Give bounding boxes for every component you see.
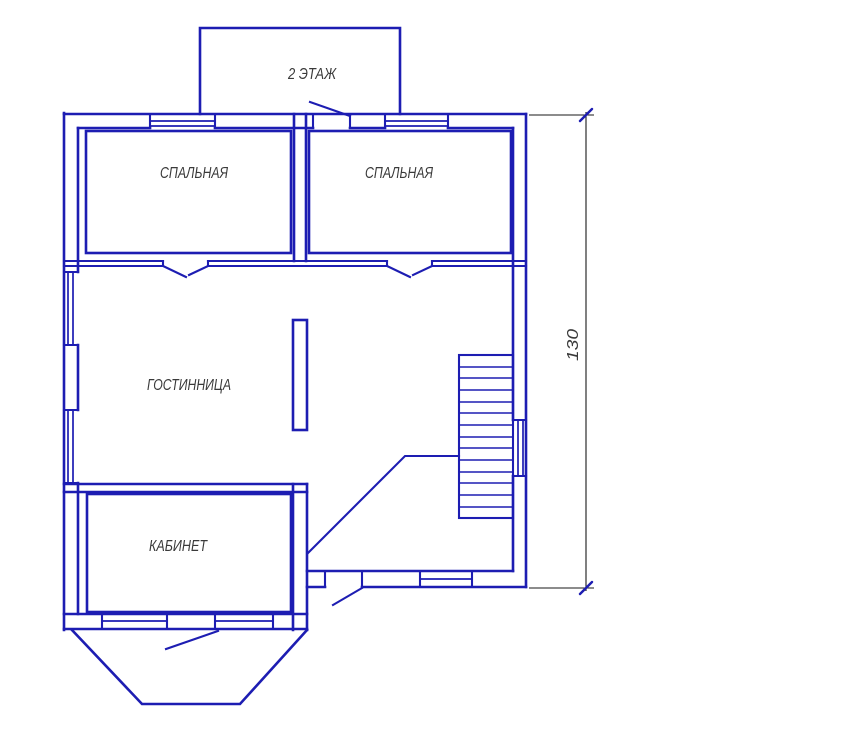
bedroom-right-box <box>309 131 511 253</box>
label-living-room: ГОСТИННИЦА <box>147 377 231 394</box>
label-bedroom-left: СПАЛЬНАЯ <box>160 165 228 182</box>
exterior-and-interior-walls <box>64 113 526 630</box>
bedroom-left-box <box>86 131 291 253</box>
dimension-lines <box>529 112 594 591</box>
dimension-label: 130 <box>565 329 582 361</box>
label-bedroom-right: СПАЛЬНАЯ <box>365 165 433 182</box>
door-swing-lines <box>163 102 432 649</box>
floor-plan-canvas: 130 2 ЭТАЖ СПАЛЬНАЯ СПАЛЬНАЯ ГОСТИННИЦА … <box>0 0 860 750</box>
staircase <box>308 355 513 553</box>
bedrooms-lower-wall <box>64 261 526 266</box>
window-glazing-lines <box>68 121 523 621</box>
pier-column <box>293 320 307 430</box>
stair-direction-line <box>308 456 459 553</box>
floor-plan-page: 130 2 ЭТАЖ СПАЛЬНАЯ СПАЛЬНАЯ ГОСТИННИЦА … <box>0 0 860 750</box>
stair-treads <box>459 367 513 507</box>
dimension-130: 130 <box>529 109 594 594</box>
label-floor-title: 2 ЭТАЖ <box>287 66 337 83</box>
label-office: КАБИНЕТ <box>149 538 208 555</box>
